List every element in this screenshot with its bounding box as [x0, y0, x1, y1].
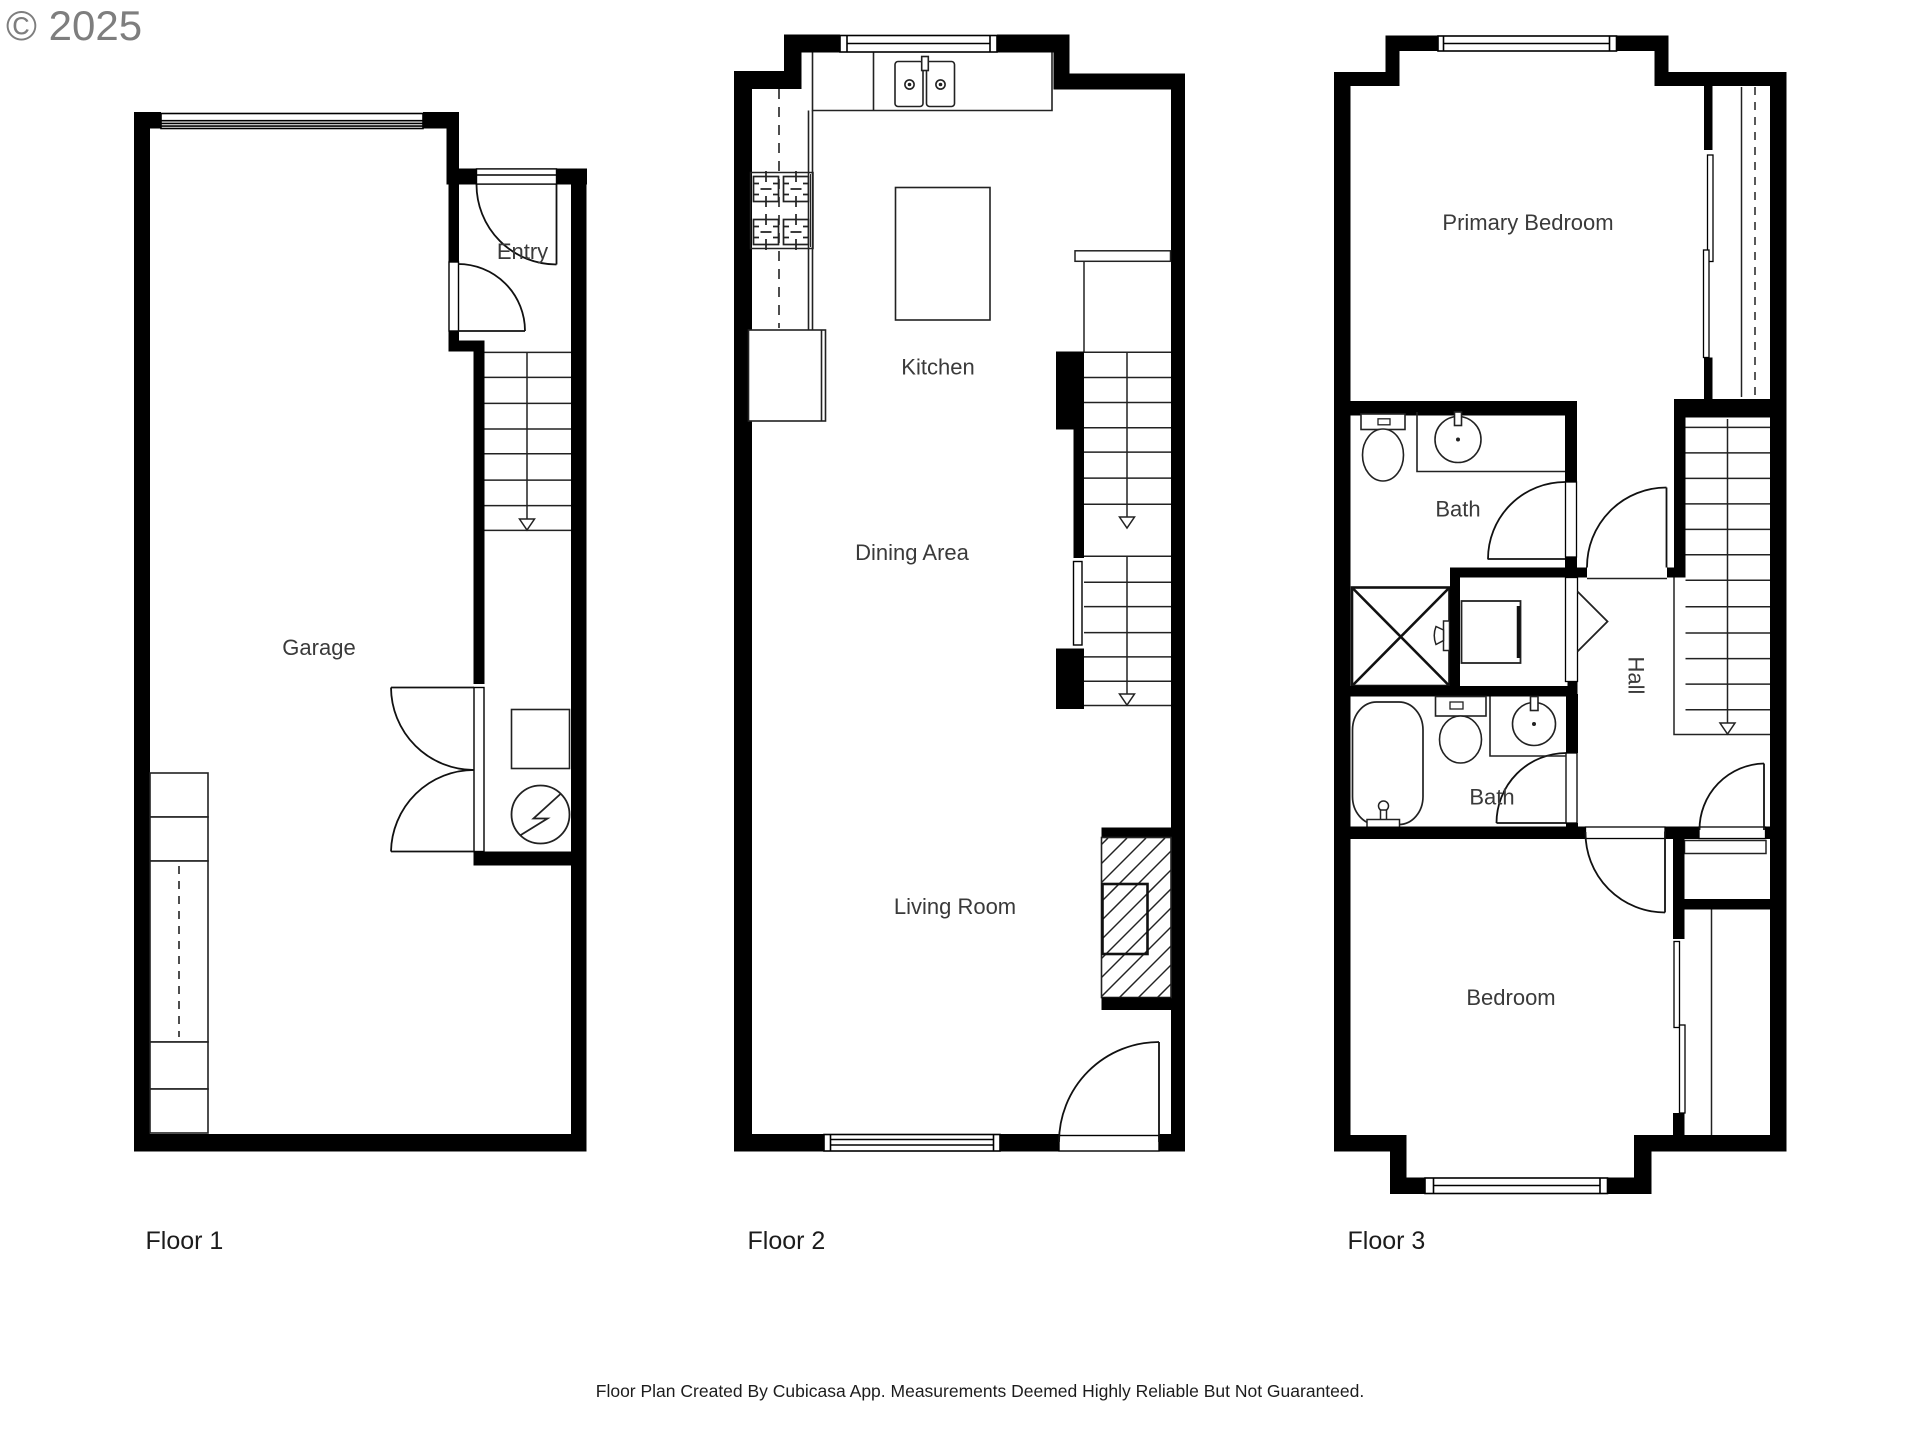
svg-text:Primary Bedroom: Primary Bedroom	[1442, 210, 1613, 235]
svg-text:Bath: Bath	[1469, 785, 1514, 810]
svg-text:Entry: Entry	[497, 239, 548, 264]
svg-text:Living Room: Living Room	[894, 894, 1016, 919]
svg-text:Floor 2: Floor 2	[748, 1227, 826, 1255]
svg-text:Floor 1: Floor 1	[146, 1227, 224, 1255]
svg-text:Hall: Hall	[1624, 657, 1649, 695]
svg-text:Floor Plan Created By Cubicasa: Floor Plan Created By Cubicasa App. Meas…	[596, 1381, 1364, 1401]
svg-text:Floor 3: Floor 3	[1348, 1227, 1426, 1255]
svg-text:Bedroom: Bedroom	[1466, 985, 1555, 1010]
svg-text:Garage: Garage	[282, 635, 355, 660]
svg-text:Kitchen: Kitchen	[901, 355, 974, 380]
svg-text:Dining Area: Dining Area	[855, 540, 970, 565]
svg-text:Bath: Bath	[1435, 497, 1480, 522]
svg-text:© 2025: © 2025	[6, 2, 142, 49]
